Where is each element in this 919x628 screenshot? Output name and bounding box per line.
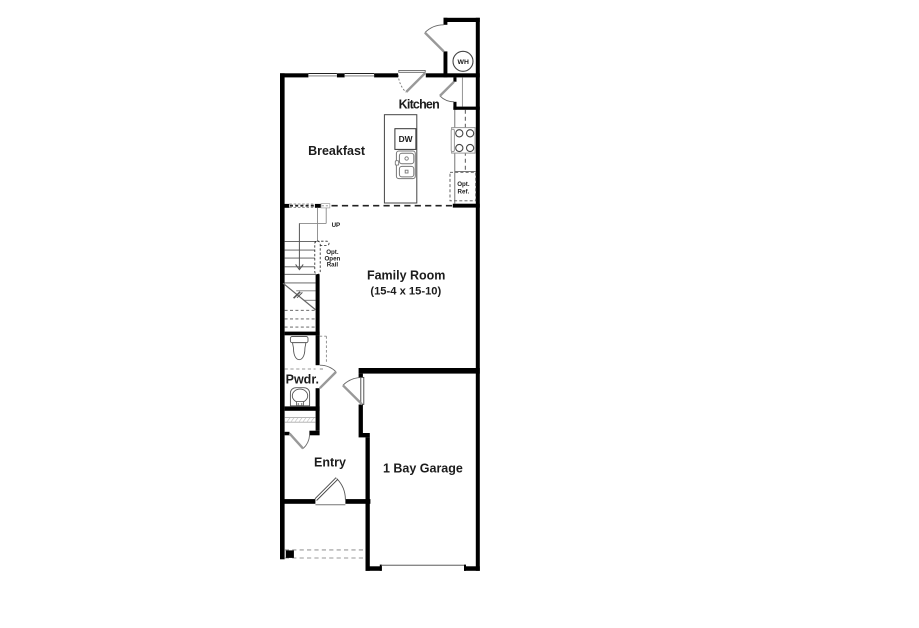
svg-text:Ref.: Ref. (458, 189, 470, 196)
svg-text:Breakfast: Breakfast (308, 144, 366, 158)
svg-text:Entry: Entry (314, 455, 346, 469)
svg-text:Pwdr.: Pwdr. (286, 372, 319, 386)
svg-text:WH: WH (458, 59, 469, 66)
svg-text:UP: UP (332, 222, 341, 229)
svg-text:Kitchen: Kitchen (399, 98, 439, 112)
svg-text:DW: DW (399, 134, 413, 144)
svg-text:Family Room: Family Room (367, 269, 446, 283)
svg-text:Opt.: Opt. (457, 181, 470, 188)
svg-text:(15-4 x 15-10): (15-4 x 15-10) (370, 285, 441, 297)
svg-text:1 Bay Garage: 1 Bay Garage (383, 461, 463, 475)
svg-text:Rail: Rail (327, 262, 339, 269)
